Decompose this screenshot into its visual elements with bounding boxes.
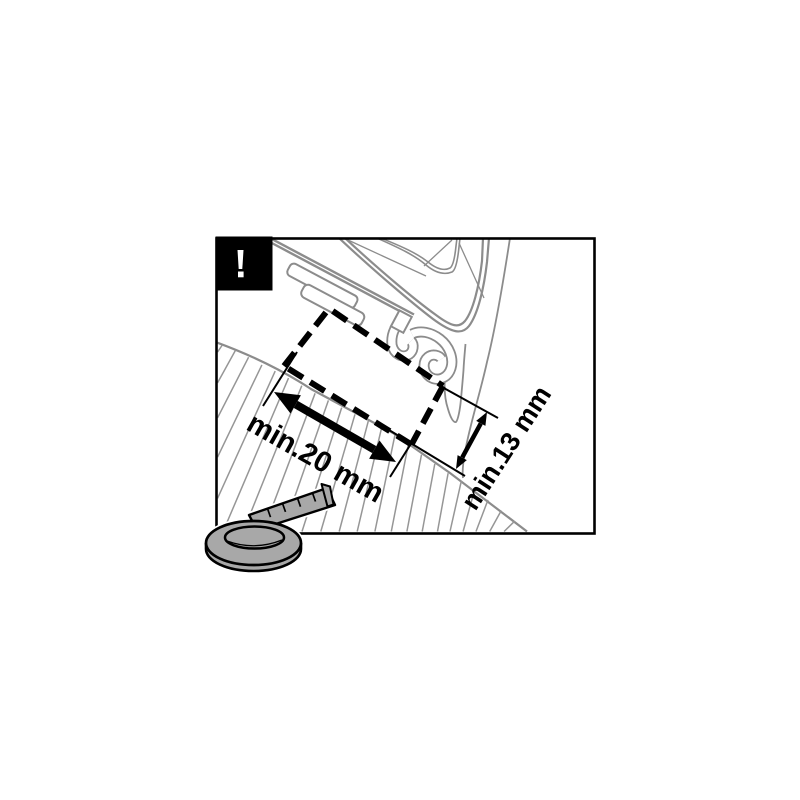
svg-text:min.13 mm: min.13 mm [455, 380, 557, 515]
